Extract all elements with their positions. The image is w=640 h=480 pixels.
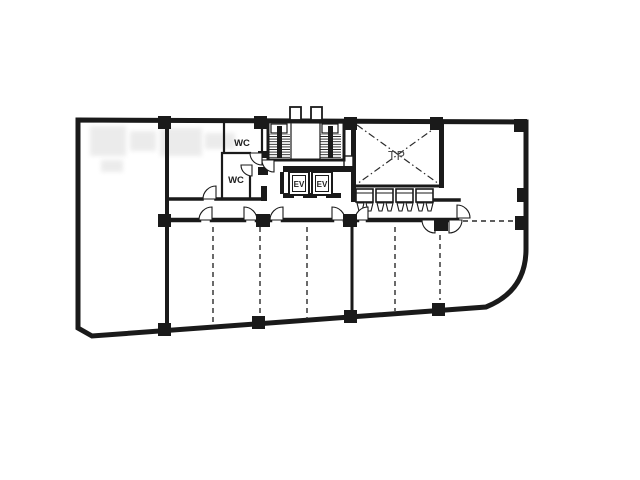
door-arc	[244, 207, 257, 220]
stair-shaft-lines	[291, 124, 320, 158]
watermark-smudge	[90, 126, 235, 172]
column	[158, 323, 171, 336]
column	[256, 214, 270, 227]
column	[254, 116, 267, 129]
elevator-bank: EV EV	[280, 166, 355, 199]
watermark-blob	[101, 160, 123, 172]
shaft-vent	[311, 107, 322, 120]
elevator-wall-left	[280, 172, 284, 194]
column	[343, 214, 357, 227]
door-arc	[449, 220, 462, 233]
stair-right-flight-wall	[328, 126, 333, 158]
hanger	[377, 203, 384, 211]
interior-walls	[167, 122, 459, 330]
column	[515, 216, 527, 230]
floor-plan: EV EV TP	[0, 0, 640, 480]
column	[158, 116, 171, 129]
fixture-box	[376, 189, 393, 202]
hanger	[397, 203, 404, 211]
column	[434, 218, 448, 231]
column	[514, 119, 527, 132]
column	[432, 303, 445, 316]
stair-left-flight-wall	[277, 126, 282, 158]
column	[517, 188, 527, 202]
door-arc	[199, 207, 212, 220]
tp-shaft-label: TP	[388, 149, 406, 163]
door-arc	[250, 153, 262, 165]
door-arc	[457, 205, 470, 218]
fixture-box	[396, 189, 413, 202]
shaft-vent	[290, 107, 301, 120]
tp-shaft-room: TP	[356, 122, 444, 188]
door-arc	[203, 186, 216, 199]
hanger	[406, 203, 413, 211]
elevator-2-label: EV	[317, 180, 328, 189]
fixture-box	[416, 189, 433, 202]
wc-lower-label: WC	[228, 175, 244, 186]
hanger	[417, 203, 424, 211]
watermark-blob	[205, 133, 235, 149]
watermark-blob	[130, 131, 156, 151]
fixture-box	[356, 189, 373, 202]
elevator-1-label: EV	[294, 180, 305, 189]
column	[344, 117, 357, 130]
column	[430, 117, 443, 130]
wall-stub	[261, 186, 267, 201]
column	[344, 310, 357, 323]
hanger	[386, 203, 393, 211]
watermark-blob	[90, 126, 126, 156]
stair-shaft-vents	[290, 107, 322, 120]
column	[158, 214, 171, 227]
fixture-boxes	[356, 189, 433, 202]
stairwell	[268, 122, 344, 160]
hanger	[426, 203, 433, 211]
door-arc	[422, 220, 435, 233]
door-arc	[270, 207, 283, 220]
wc-upper-label: WC	[234, 138, 250, 149]
column	[252, 316, 265, 329]
wall-tp-right	[439, 122, 444, 188]
